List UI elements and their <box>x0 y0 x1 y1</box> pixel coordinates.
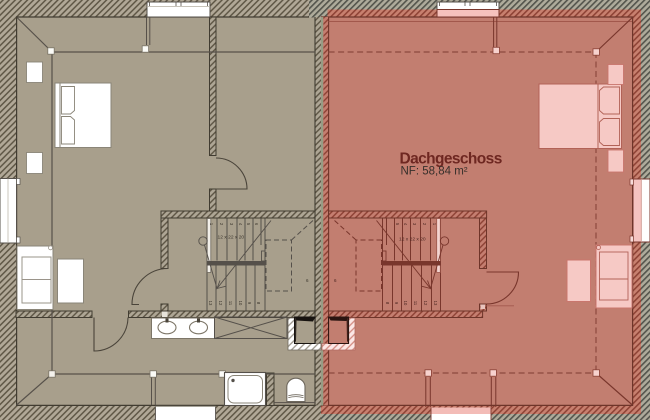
svg-text:10: 10 <box>403 301 408 306</box>
svg-text:NF: 58,84 m²: NF: 58,84 m² <box>401 166 468 178</box>
svg-text:12: 12 <box>423 301 428 306</box>
svg-text:10: 10 <box>238 301 243 306</box>
svg-text:13: 13 <box>208 301 213 306</box>
svg-text:11: 11 <box>413 301 418 306</box>
svg-text:12 x 22 x 20: 12 x 22 x 20 <box>218 235 245 241</box>
svg-text:11: 11 <box>228 301 233 306</box>
svg-text:13: 13 <box>433 301 438 306</box>
svg-text:12 x 22 x 20: 12 x 22 x 20 <box>399 237 426 243</box>
svg-text:12: 12 <box>218 301 223 306</box>
